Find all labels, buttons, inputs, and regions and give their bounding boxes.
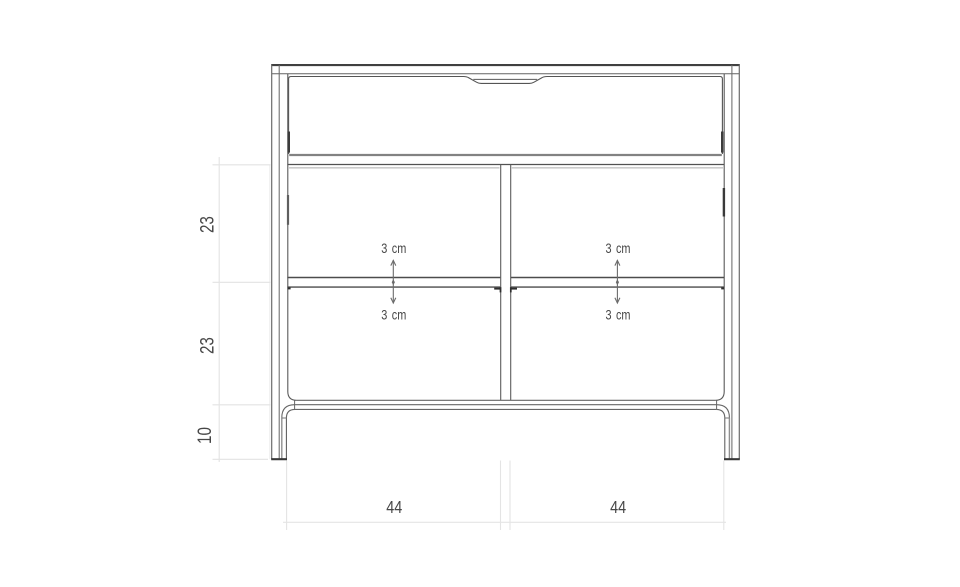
svg-text:3 cm: 3 cm: [381, 307, 406, 323]
svg-text:44: 44: [386, 498, 402, 518]
svg-text:3 cm: 3 cm: [381, 241, 406, 257]
svg-text:44: 44: [610, 498, 626, 518]
svg-text:23: 23: [196, 337, 218, 354]
svg-text:3 cm: 3 cm: [605, 241, 630, 257]
svg-text:10: 10: [193, 427, 215, 444]
svg-text:3 cm: 3 cm: [605, 307, 630, 323]
svg-text:23: 23: [196, 216, 218, 233]
